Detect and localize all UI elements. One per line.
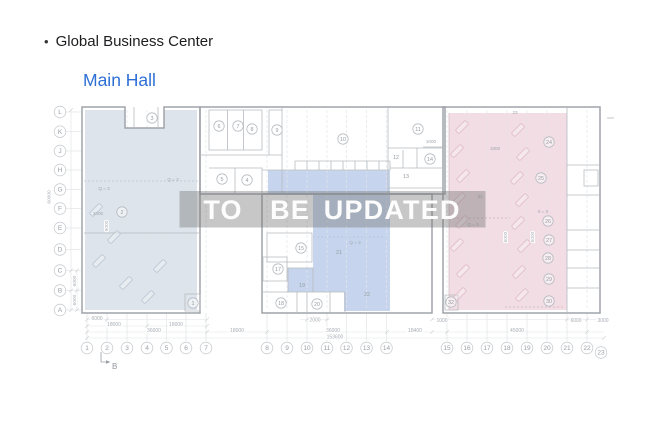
dimension-label-rotated: 9000 bbox=[104, 220, 110, 231]
dimension-label: 18400 bbox=[408, 328, 422, 334]
axis-col-label: 7 bbox=[204, 345, 208, 352]
room-number: 25 bbox=[538, 176, 544, 182]
room-number: 27 bbox=[546, 238, 552, 244]
axis-row-label: E bbox=[58, 225, 63, 232]
axis-col-label: 18 bbox=[503, 345, 511, 352]
watermark-text: TO BE UPDATED bbox=[203, 195, 460, 225]
axis-col-label: 15 bbox=[443, 345, 451, 352]
axis-col-label: 8 bbox=[265, 345, 269, 352]
axis-col-label: 2 bbox=[105, 345, 109, 352]
room-number: 28 bbox=[545, 256, 551, 262]
dimension-label-rotated: 6000 bbox=[72, 294, 78, 305]
room-number: 13 bbox=[403, 174, 409, 180]
axis-col-label: 1 bbox=[85, 345, 89, 352]
room-number: 8 bbox=[251, 127, 254, 133]
plan-annotation: Q = 3 bbox=[167, 177, 179, 182]
room-number: 22 bbox=[364, 292, 370, 298]
dimension-label-rotated: 6000 bbox=[72, 275, 78, 286]
plan-annotation: 1800 bbox=[490, 146, 501, 151]
plan-annotation: Q = 3 bbox=[349, 240, 361, 245]
axis-row-label: A bbox=[58, 307, 63, 314]
dimension-label: 2000 bbox=[309, 318, 320, 324]
room-number: 5 bbox=[221, 177, 224, 183]
room-number: 19 bbox=[299, 283, 305, 289]
room-number: 17 bbox=[275, 267, 281, 273]
room-number: 2 bbox=[121, 210, 124, 216]
dimension-label: 3000 bbox=[597, 318, 608, 324]
axis-col-label: 12 bbox=[343, 345, 351, 352]
floor-plan-page: • Global Business Center Main Hall bbox=[0, 0, 660, 440]
room-number: 9 bbox=[276, 128, 279, 134]
dimension-label: 36000 bbox=[147, 328, 161, 334]
room-number: 20 bbox=[314, 302, 320, 308]
axis-col-label: 11 bbox=[324, 345, 331, 352]
axis-col-label: 3 bbox=[125, 345, 129, 352]
dimension-label: 6000 bbox=[570, 318, 581, 324]
axis-col-label: 21 bbox=[563, 345, 571, 352]
section-marker-label: B bbox=[112, 362, 117, 371]
room-number: 1 bbox=[192, 301, 195, 307]
plan-annotation: 23 bbox=[512, 110, 518, 115]
room-number: 15 bbox=[298, 246, 304, 252]
plan-annotation: Q = 3 bbox=[98, 186, 110, 191]
room-number: 26 bbox=[545, 219, 551, 225]
dimension-label-rotated: 6000 bbox=[503, 231, 509, 242]
axis-col-label: 9 bbox=[285, 345, 289, 352]
axis-col-label: 16 bbox=[463, 345, 471, 352]
dimension-label-rotated: 60000 bbox=[47, 190, 53, 204]
axis-col-label: 6 bbox=[184, 345, 188, 352]
axis-col-label: 10 bbox=[303, 345, 311, 352]
room-number: 21 bbox=[336, 250, 342, 256]
dimension-label-rotated: 6000 bbox=[530, 231, 536, 242]
room-number: 10 bbox=[340, 137, 346, 143]
axis-col-label: 14 bbox=[383, 345, 391, 352]
room-number: 6 bbox=[218, 124, 221, 130]
axis-row-label: C bbox=[58, 268, 63, 275]
floor-plan-canvas: B LKJHGFEDCBA123456789101112131415161718… bbox=[0, 0, 660, 440]
dimension-label: 18000 bbox=[107, 322, 121, 328]
axis-row-label: J bbox=[58, 148, 61, 155]
room-number: 32 bbox=[448, 300, 454, 306]
axis-row-label: H bbox=[58, 167, 63, 174]
dimension-label: 45000 bbox=[510, 328, 524, 334]
axis-col-label: 20 bbox=[543, 345, 551, 352]
room-number: 29 bbox=[546, 277, 552, 283]
room-number: 7 bbox=[237, 124, 240, 130]
plan-annotation: 1000 bbox=[426, 139, 437, 144]
axis-col-label: 19 bbox=[523, 345, 531, 352]
watermark-band: TO BE UPDATED bbox=[180, 191, 486, 228]
room-number: 4 bbox=[246, 178, 249, 184]
axis-row-label: K bbox=[58, 129, 63, 136]
axis-row-label: L bbox=[58, 109, 62, 116]
axis-col-label: 23 bbox=[597, 350, 605, 357]
axis-row-label: G bbox=[57, 187, 62, 194]
plan-annotation: 2000 bbox=[93, 211, 104, 216]
room-number: 30 bbox=[546, 299, 552, 305]
room-number: 12 bbox=[393, 155, 399, 161]
axis-row-label: F bbox=[58, 206, 62, 213]
dimension-label: 36000 bbox=[326, 328, 340, 334]
axis-col-label: 17 bbox=[483, 345, 491, 352]
axis-col-label: 22 bbox=[583, 345, 591, 352]
dimension-label: 1000 bbox=[436, 318, 447, 324]
axis-col-label: 13 bbox=[363, 345, 371, 352]
dimension-label: 6000 bbox=[91, 316, 102, 322]
axis-col-label: 4 bbox=[145, 345, 149, 352]
room-number: 11 bbox=[415, 127, 421, 133]
dimension-label: 153600 bbox=[327, 335, 344, 341]
axis-row-label: D bbox=[58, 247, 63, 254]
room-number: 3 bbox=[151, 116, 154, 122]
dimension-label: 18000 bbox=[230, 328, 244, 334]
axis-col-label: 5 bbox=[165, 345, 169, 352]
room-number: 24 bbox=[546, 140, 552, 146]
plan-annotation: 0 = 3 bbox=[538, 209, 549, 214]
dimension-label: 18000 bbox=[169, 322, 183, 328]
room-number: 14 bbox=[427, 157, 433, 163]
axis-row-label: B bbox=[58, 288, 62, 295]
room-number: 18 bbox=[278, 301, 284, 307]
